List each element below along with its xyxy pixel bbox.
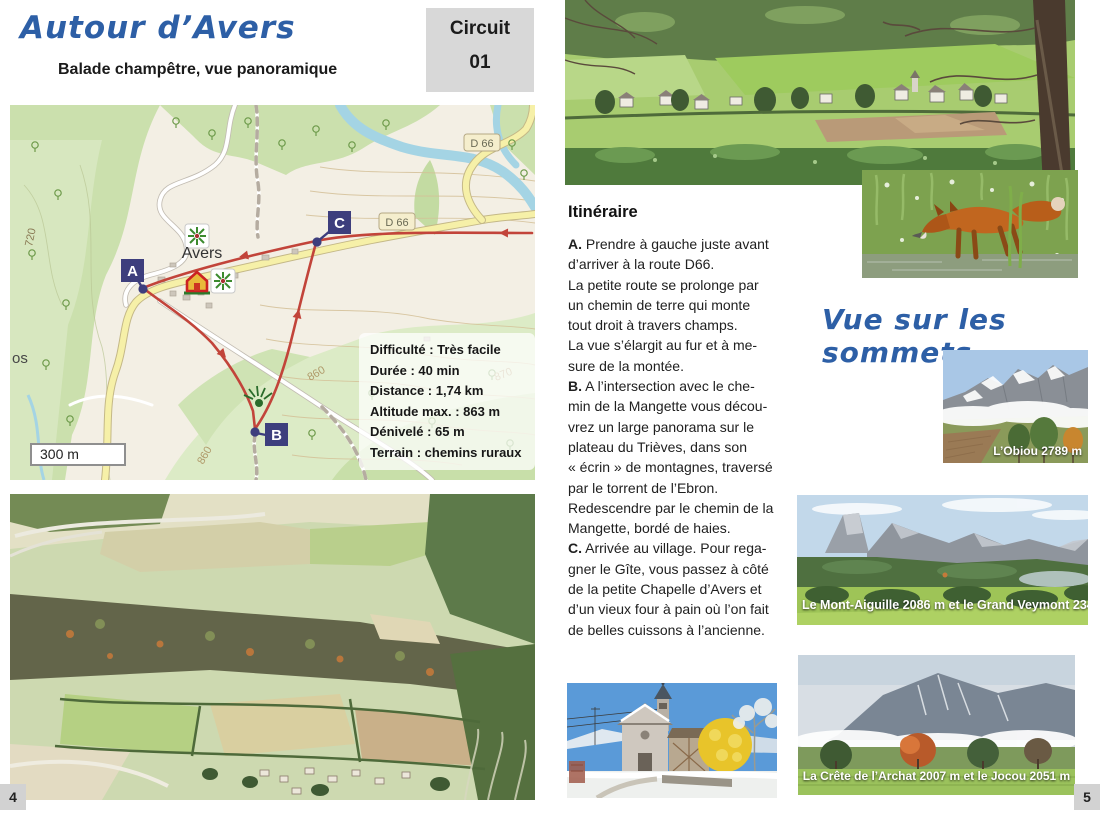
obiou-caption: L’Obiou 2789 m [943, 444, 1082, 458]
valley-panorama-photo [565, 0, 1075, 185]
itinerary-paragraph-c: C. Arrivée au village. Pour rega- gner l… [568, 538, 800, 639]
page-subtitle: Balade champêtre, vue panoramique [58, 61, 337, 79]
map-info-box: Difficulté : Très facile Durée : 40 min … [359, 333, 535, 470]
chapel-photo [567, 683, 777, 798]
obiou-photo: L’Obiou 2789 m [943, 350, 1088, 463]
itinerary-paragraph-a: A. Prendre à gauche juste avant d’arrive… [568, 234, 800, 376]
archat-caption: La Crête de l’Archat 2007 m et le Jocou … [798, 769, 1075, 783]
route-map: A C B Avers D 66 D 66 720 860 860 870 os [10, 105, 535, 480]
svg-text:B: B [271, 427, 282, 444]
itinerary-paragraph-b: B. A l’intersection avec le che- min de … [568, 376, 800, 538]
info-difficulty: Difficulté : Très facile [370, 340, 531, 361]
page-number-left: 4 [0, 784, 26, 810]
mont-aiguille-photo: Le Mont-Aiguille 2086 m et le Grand Veym… [797, 495, 1088, 625]
page-title: Autour d’Avers [20, 10, 296, 46]
itinerary-heading: Itinéraire [568, 203, 638, 222]
svg-text:D 66: D 66 [385, 217, 408, 229]
info-altitude: Altitude max. : 863 m [370, 402, 531, 423]
mont-aiguille-caption: Le Mont-Aiguille 2086 m et le Grand Veym… [802, 598, 1088, 612]
info-terrain: Terrain : chemins ruraux [370, 443, 531, 464]
map-edge-label: os [12, 350, 28, 367]
road-badge-mid: D 66 [379, 213, 415, 230]
map-village-label: Avers [182, 245, 223, 262]
fox-photo [862, 170, 1078, 278]
info-elevation: Dénivelé : 65 m [370, 422, 531, 443]
info-duration: Durée : 40 min [370, 361, 531, 382]
svg-text:C: C [334, 215, 345, 232]
itinerary-text: A. Prendre à gauche juste avant d’arrive… [568, 234, 800, 640]
road-badge-top: D 66 [464, 134, 500, 151]
circuit-badge-number: 01 [426, 52, 534, 74]
aerial-valley-photo [10, 494, 535, 800]
svg-text:A: A [127, 263, 138, 280]
svg-text:D 66: D 66 [470, 138, 493, 150]
circuit-badge: Circuit 01 [426, 8, 534, 92]
circuit-badge-label: Circuit [426, 18, 534, 40]
page-number-right: 5 [1074, 784, 1100, 810]
archat-photo: La Crête de l’Archat 2007 m et le Jocou … [798, 655, 1075, 795]
map-scale: 300 m [30, 443, 126, 466]
info-distance: Distance : 1,74 km [370, 381, 531, 402]
flower-icon [211, 269, 235, 293]
